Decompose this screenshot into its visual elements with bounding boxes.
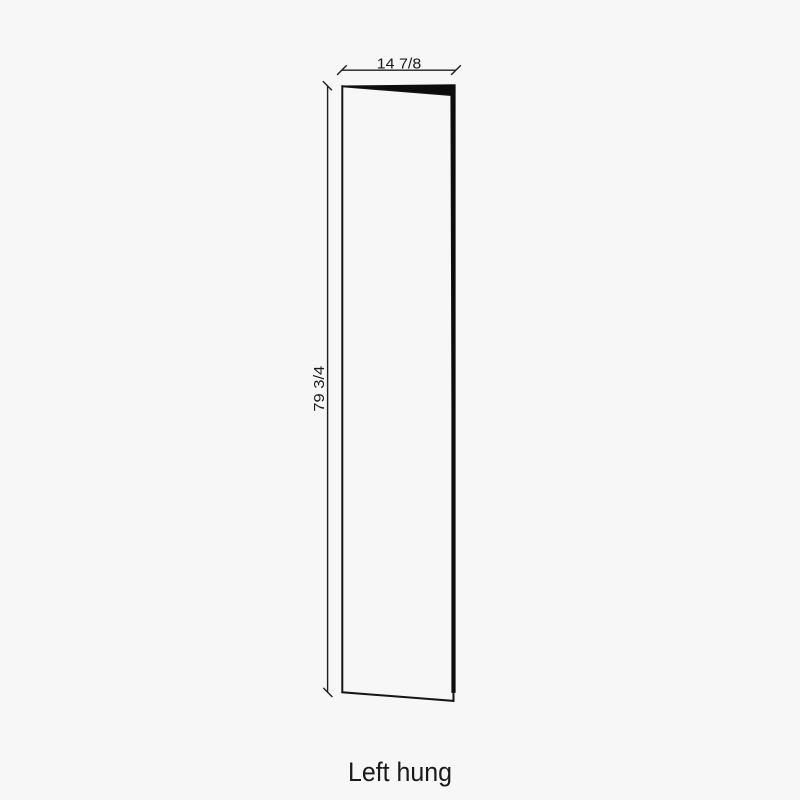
svg-text:14 7/8: 14 7/8 <box>377 55 422 72</box>
svg-text:79 3/4: 79 3/4 <box>311 366 328 412</box>
svg-text:Left hung: Left hung <box>348 757 452 787</box>
